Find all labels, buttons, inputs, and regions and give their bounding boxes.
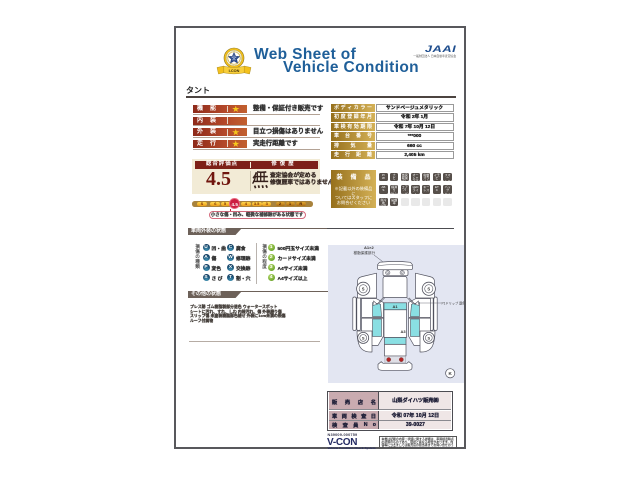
svg-text:I-CON: I-CON <box>229 69 240 73</box>
svg-text:A1: A1 <box>392 304 398 309</box>
svg-text:S: S <box>362 336 365 341</box>
svg-text:S: S <box>427 336 430 341</box>
svg-text:樹脂保護部分: 樹脂保護部分 <box>354 250 376 255</box>
svg-text:A1×2: A1×2 <box>364 245 374 250</box>
svg-text:P1ドリップ 退色: P1ドリップ 退色 <box>442 301 465 306</box>
svg-text:S: S <box>427 286 430 291</box>
svg-text:A3: A3 <box>400 329 406 334</box>
svg-text:S: S <box>362 286 365 291</box>
